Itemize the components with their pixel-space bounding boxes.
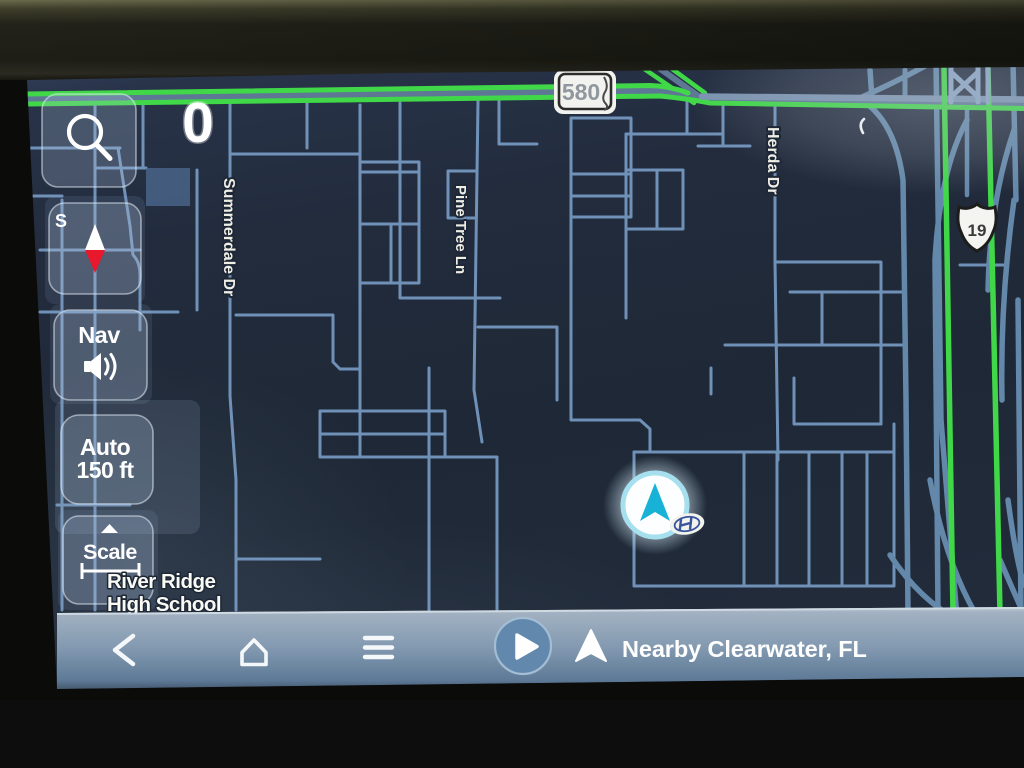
- svg-text:Pine Tree Ln: Pine Tree Ln: [452, 185, 469, 274]
- svg-text:Nearby Clearwater, FL: Nearby Clearwater, FL: [622, 636, 867, 662]
- svg-text:River Ridge: River Ridge: [107, 570, 216, 593]
- svg-text:19: 19: [968, 221, 987, 240]
- svg-text:0: 0: [182, 91, 214, 155]
- svg-text:Summerdale Dr: Summerdale Dr: [220, 178, 237, 296]
- svg-text:S: S: [55, 211, 67, 231]
- svg-text:580: 580: [562, 79, 600, 105]
- svg-text:Nav: Nav: [78, 322, 120, 348]
- svg-text:Scale: Scale: [83, 540, 137, 564]
- svg-text:Herda Dr: Herda Dr: [764, 127, 781, 195]
- svg-text:150 ft: 150 ft: [76, 457, 134, 483]
